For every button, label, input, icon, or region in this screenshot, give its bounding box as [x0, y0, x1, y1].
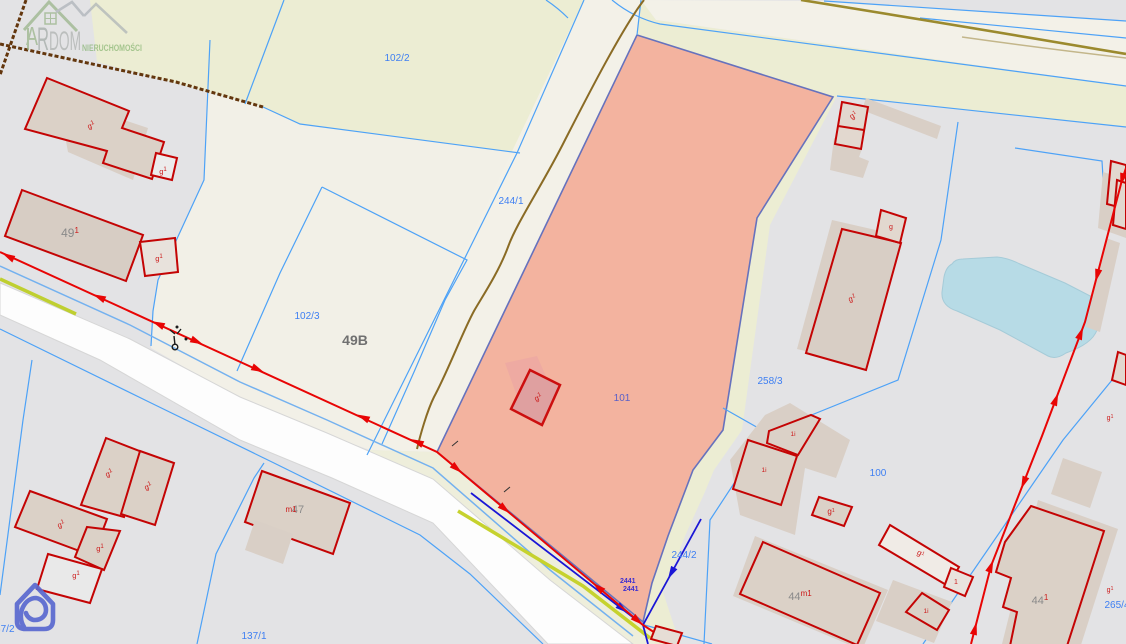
svg-text:258/3: 258/3	[757, 376, 782, 387]
svg-text:244/1: 244/1	[498, 196, 523, 207]
svg-text:m1: m1	[285, 505, 297, 514]
svg-text:102/3: 102/3	[294, 311, 319, 322]
svg-text:DOM: DOM	[49, 26, 81, 56]
svg-text:265/4: 265/4	[1104, 600, 1126, 611]
svg-text:2441: 2441	[620, 578, 636, 585]
svg-text:1i: 1i	[923, 608, 928, 615]
svg-text:101: 101	[614, 393, 631, 404]
svg-text:1: 1	[954, 579, 958, 586]
svg-text:2441: 2441	[623, 586, 639, 593]
svg-text:100: 100	[870, 468, 887, 479]
svg-text:NIERUCHOMOŚCI: NIERUCHOMOŚCI	[82, 42, 142, 53]
svg-text:244/2: 244/2	[671, 550, 696, 561]
svg-text:49B: 49B	[342, 332, 368, 348]
svg-text:137/1: 137/1	[241, 631, 266, 642]
svg-text:137/2: 137/2	[0, 624, 15, 635]
svg-text:1i: 1i	[761, 467, 766, 474]
svg-text:g: g	[889, 224, 893, 231]
svg-text:102/2: 102/2	[384, 53, 409, 64]
svg-text:1i: 1i	[790, 431, 795, 438]
svg-text:R: R	[37, 21, 49, 57]
